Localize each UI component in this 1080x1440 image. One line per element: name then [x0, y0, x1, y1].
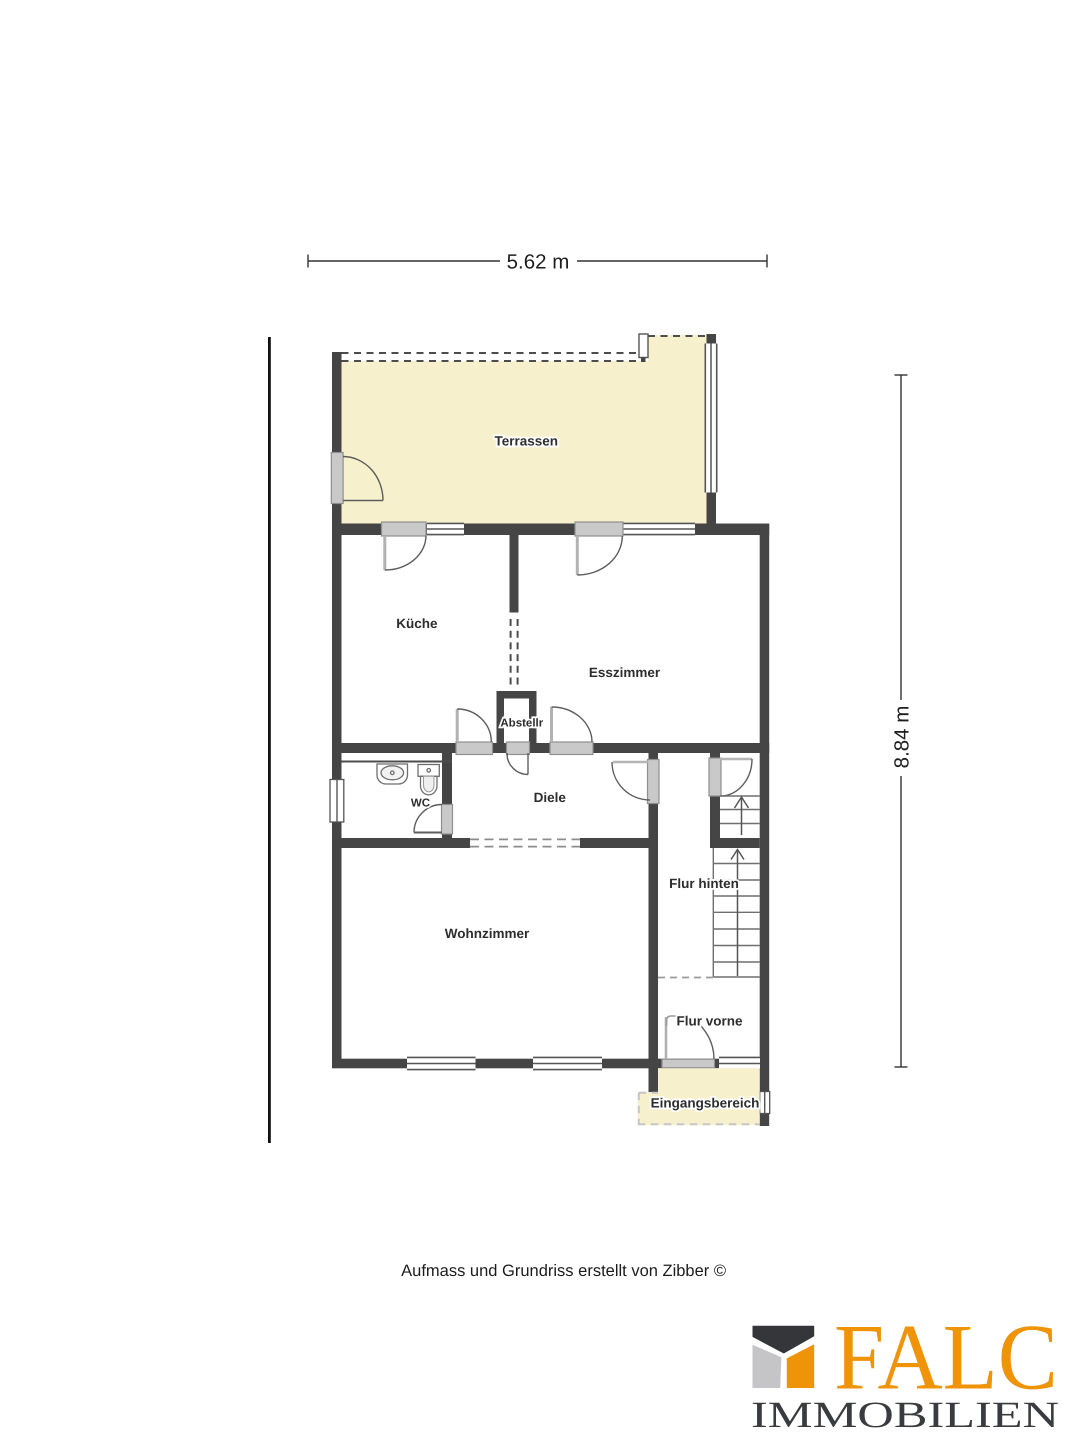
svg-text:5.62 m: 5.62 m: [507, 251, 570, 274]
svg-text:WC: WC: [411, 798, 430, 810]
svg-text:Küche: Küche: [396, 616, 438, 631]
svg-text:Abstellr: Abstellr: [500, 718, 543, 730]
svg-text:IMMOBILIEN: IMMOBILIEN: [751, 1395, 1059, 1436]
svg-text:Eingangsbereich: Eingangsbereich: [651, 1096, 760, 1111]
svg-text:Flur hinten: Flur hinten: [669, 876, 739, 891]
svg-text:Aufmass und Grundriss erstellt: Aufmass und Grundriss erstellt von Zibbe…: [401, 1262, 726, 1280]
svg-text:Esszimmer: Esszimmer: [589, 665, 661, 680]
svg-text:FALC: FALC: [834, 1306, 1058, 1410]
svg-text:Wohnzimmer: Wohnzimmer: [445, 926, 530, 941]
svg-text:Flur vorne: Flur vorne: [676, 1014, 743, 1029]
svg-text:8.84 m: 8.84 m: [891, 706, 914, 769]
svg-text:Diele: Diele: [534, 790, 567, 805]
svg-text:Terrassen: Terrassen: [495, 434, 559, 449]
